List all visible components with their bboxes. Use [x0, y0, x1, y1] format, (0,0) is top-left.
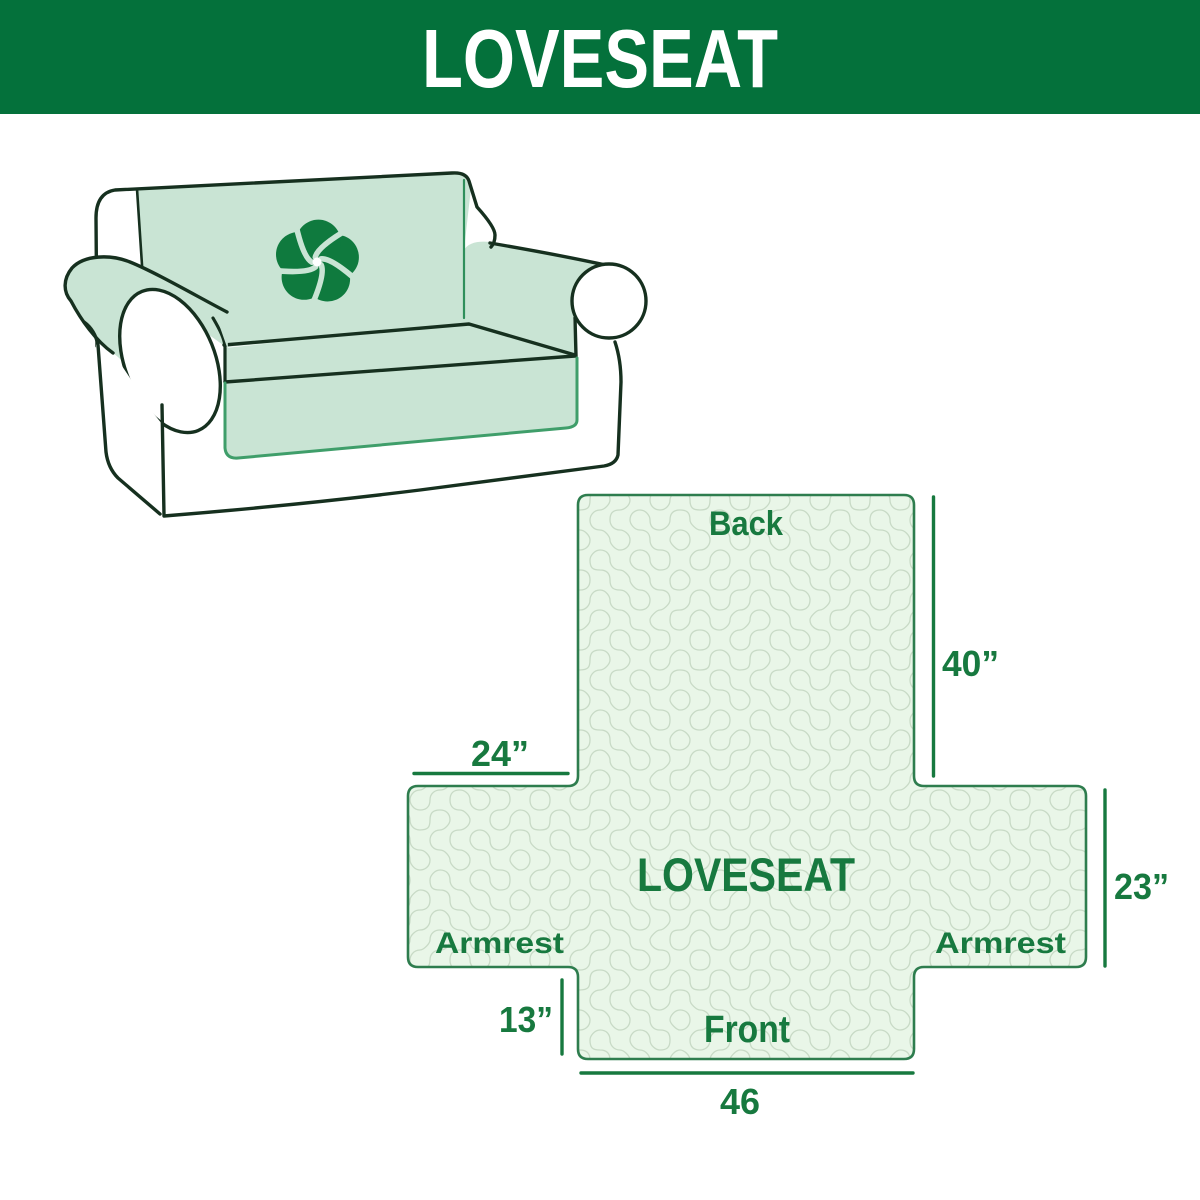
svg-text:LOVESEAT: LOVESEAT — [422, 12, 778, 105]
svg-text:Front: Front — [704, 1009, 790, 1051]
svg-text:46: 46 — [720, 1081, 760, 1122]
svg-text:24”: 24” — [471, 733, 529, 774]
svg-text:LOVESEAT: LOVESEAT — [637, 848, 855, 901]
svg-text:Armrest: Armrest — [935, 927, 1066, 960]
svg-text:13”: 13” — [499, 999, 553, 1040]
svg-text:Armrest: Armrest — [435, 927, 564, 960]
svg-text:Back: Back — [709, 505, 783, 543]
svg-text:40”: 40” — [942, 643, 999, 684]
svg-text:23”: 23” — [1114, 866, 1169, 907]
